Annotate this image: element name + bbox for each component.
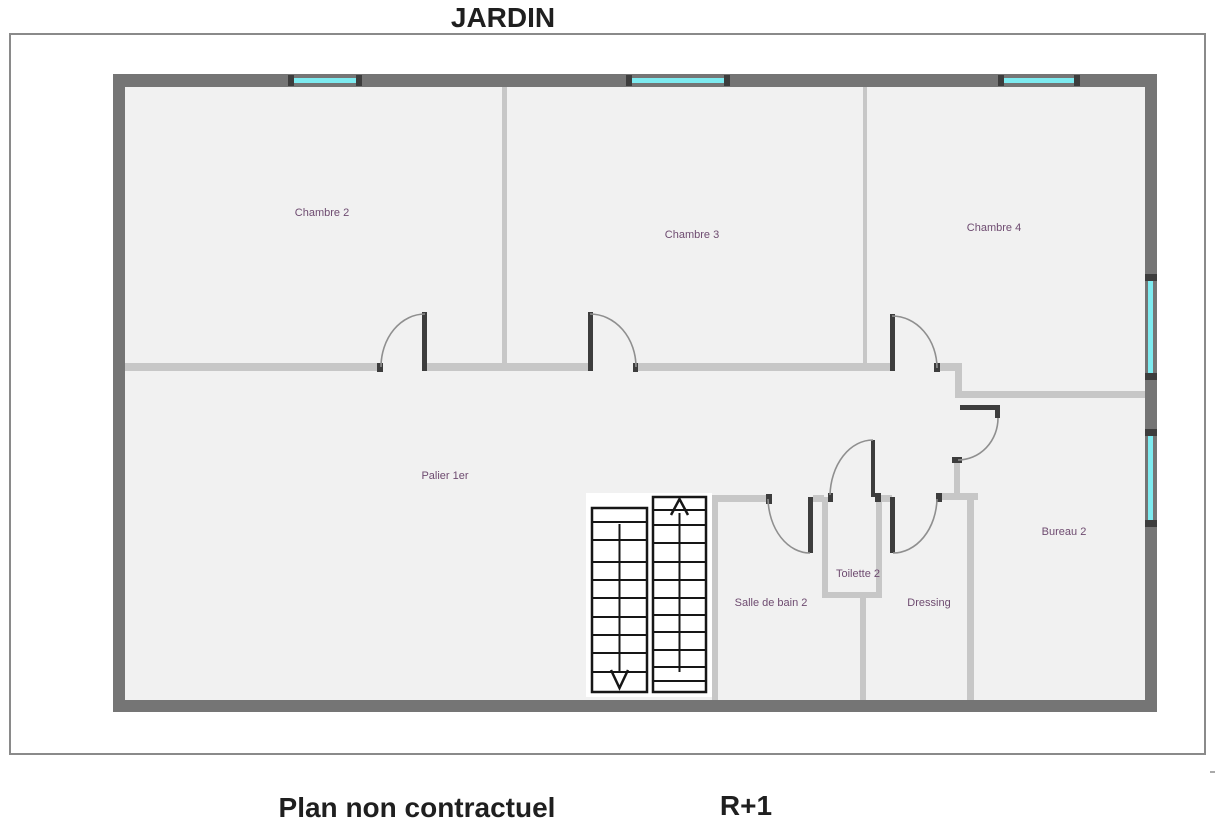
- room-label-palier: Palier 1er: [421, 470, 468, 482]
- room-label-bureau: Bureau 2: [1042, 526, 1087, 538]
- room-label-chambre-4: Chambre 4: [967, 222, 1021, 234]
- room-label-chambre-3: Chambre 3: [665, 229, 719, 241]
- room-label-chambre-2: Chambre 2: [295, 207, 349, 219]
- wall-chambre4-bureau: [962, 391, 1145, 398]
- stray-mark: [1210, 771, 1215, 773]
- staircase: [586, 493, 712, 697]
- footer-floor-level: R+1: [720, 790, 772, 821]
- wall-dressing-bureau: [967, 500, 974, 700]
- wall-bathroom-left: [712, 495, 718, 700]
- stair-flight-down: [592, 508, 647, 692]
- wall-chambre3-4: [863, 87, 867, 371]
- wall-sdb-dressing: [860, 598, 866, 700]
- garden-title: JARDIN: [451, 2, 555, 33]
- room-label-salle-de-bain: Salle de bain 2: [735, 597, 808, 609]
- wall-chambre2-3: [502, 87, 507, 371]
- floor-plan-svg: JARDIN: [0, 0, 1232, 829]
- floor-plan-page: JARDIN: [0, 0, 1232, 829]
- room-label-dressing: Dressing: [907, 597, 950, 609]
- room-label-toilette: Toilette 2: [836, 568, 880, 580]
- footer-disclaimer: Plan non contractuel: [279, 792, 556, 823]
- stair-flight-up: [653, 497, 706, 692]
